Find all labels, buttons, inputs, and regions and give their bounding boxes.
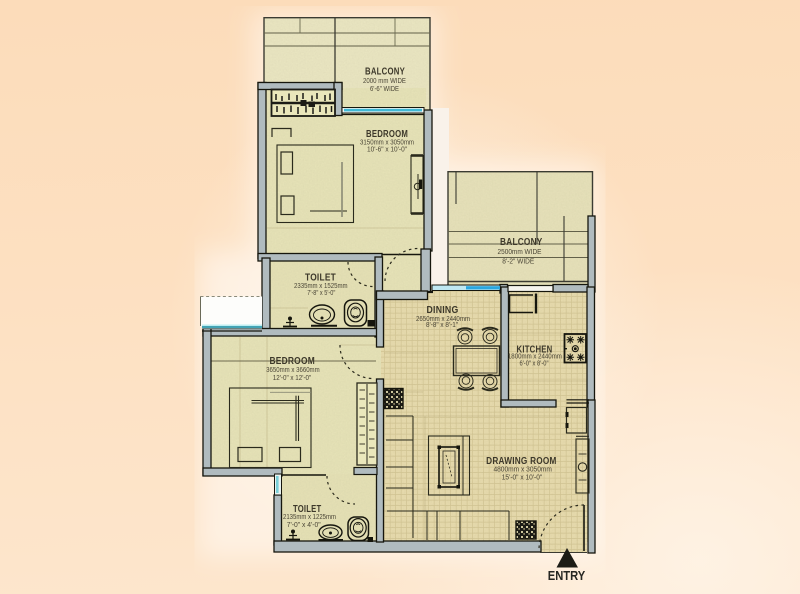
svg-text:2335mm x 1525mm: 2335mm x 1525mm bbox=[294, 283, 348, 290]
svg-text:DRAWING ROOM: DRAWING ROOM bbox=[486, 455, 557, 467]
svg-text:7'-8" x 5'-0": 7'-8" x 5'-0" bbox=[307, 290, 335, 297]
svg-text:ENTRY: ENTRY bbox=[548, 568, 586, 583]
svg-text:3150mm x 3050mm: 3150mm x 3050mm bbox=[360, 140, 414, 147]
svg-text:7'-0" x 4'-0": 7'-0" x 4'-0" bbox=[287, 522, 321, 529]
svg-text:12'-0" x 12'-0": 12'-0" x 12'-0" bbox=[273, 375, 312, 382]
svg-text:BALCONY: BALCONY bbox=[500, 236, 543, 248]
svg-text:6'-0" x 8'-0": 6'-0" x 8'-0" bbox=[520, 360, 549, 367]
svg-text:4800mm x 3050mm: 4800mm x 3050mm bbox=[493, 466, 552, 473]
svg-text:1800mm x 2440mm: 1800mm x 2440mm bbox=[508, 353, 562, 360]
svg-text:TOILET: TOILET bbox=[305, 271, 336, 283]
svg-text:BALCONY: BALCONY bbox=[365, 66, 405, 78]
svg-text:8'-2" WIDE: 8'-2" WIDE bbox=[502, 259, 534, 266]
svg-text:3650mm x 3660mm: 3650mm x 3660mm bbox=[266, 367, 320, 374]
svg-text:2000 mm WIDE: 2000 mm WIDE bbox=[363, 78, 406, 85]
svg-text:BEDROOM: BEDROOM bbox=[366, 128, 408, 140]
svg-text:8'-8" x 8'-1": 8'-8" x 8'-1" bbox=[426, 322, 458, 329]
svg-text:BEDROOM: BEDROOM bbox=[269, 355, 315, 367]
svg-text:15'-0" x 10'-0": 15'-0" x 10'-0" bbox=[502, 475, 543, 482]
svg-text:2500mm WIDE: 2500mm WIDE bbox=[498, 249, 542, 256]
svg-text:DINING: DINING bbox=[427, 304, 459, 316]
svg-text:2135mm x 1225mm: 2135mm x 1225mm bbox=[283, 514, 336, 521]
svg-text:10'-6" x 10'-0": 10'-6" x 10'-0" bbox=[367, 147, 407, 154]
svg-text:6'-6" WIDE: 6'-6" WIDE bbox=[370, 86, 399, 93]
